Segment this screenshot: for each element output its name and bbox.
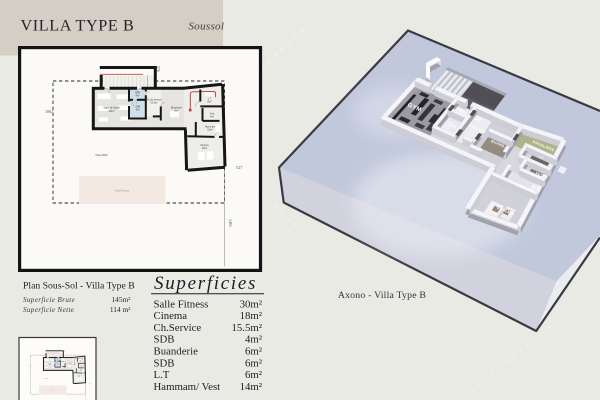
svg-text:Ch.Service: Ch.Service: [154, 322, 202, 334]
svg-text:18m²: 18m²: [202, 147, 208, 150]
svg-text:6m²: 6m²: [245, 346, 262, 358]
svg-text:L.T: L.T: [154, 369, 170, 381]
svg-text:4m²: 4m²: [245, 334, 262, 346]
svg-text:527: 527: [236, 165, 242, 170]
svg-text:Tracé Piscine: Tracé Piscine: [115, 190, 130, 193]
svg-text:30m²: 30m²: [240, 298, 262, 310]
svg-text:Superficie Nette: Superficie Nette: [23, 306, 74, 314]
svg-text:6m²: 6m²: [245, 357, 262, 369]
svg-text:114 m²: 114 m²: [110, 305, 131, 314]
svg-text:14m²: 14m²: [240, 381, 262, 393]
svg-text:6m²: 6m²: [174, 109, 178, 112]
svg-text:1461: 1461: [228, 219, 233, 227]
svg-text:Superficies: Superficies: [154, 273, 257, 294]
svg-text:4m²: 4m²: [135, 94, 139, 97]
svg-text:6m²: 6m²: [245, 369, 262, 381]
svg-text:1862: 1862: [45, 109, 53, 114]
svg-text:145m²: 145m²: [111, 295, 131, 304]
svg-text:4m²: 4m²: [210, 115, 214, 118]
svg-text:Cinema: Cinema: [154, 310, 188, 322]
svg-text:6m²: 6m²: [207, 100, 211, 103]
svg-text:6m²: 6m²: [136, 108, 140, 111]
svg-text:15.5m²: 15.5m²: [150, 101, 158, 104]
svg-text:576: 576: [156, 66, 160, 72]
svg-text:Axono - Villa Type B: Axono - Villa Type B: [338, 290, 427, 301]
svg-text:15.5m²: 15.5m²: [231, 322, 262, 334]
svg-text:VILLA TYPE B: VILLA TYPE B: [21, 17, 135, 35]
svg-text:Superficie Brute: Superficie Brute: [23, 296, 75, 304]
svg-text:Buanderie: Buanderie: [154, 346, 199, 358]
svg-text:SDB: SDB: [154, 357, 175, 369]
svg-text:Hammam/ Vest: Hammam/ Vest: [154, 381, 221, 393]
svg-text:30m²: 30m²: [109, 109, 115, 113]
svg-text:Salle Fitness: Salle Fitness: [154, 298, 209, 310]
svg-text:18m²: 18m²: [240, 310, 262, 322]
svg-text:Soussol: Soussol: [189, 21, 225, 33]
svg-text:10m²: 10m²: [207, 128, 213, 131]
svg-text:Plan Sous-Sol - Villa Type B: Plan Sous-Sol - Villa Type B: [23, 280, 135, 291]
svg-text:Tracé RDC: Tracé RDC: [95, 154, 108, 157]
svg-text:SDB: SDB: [154, 334, 175, 346]
